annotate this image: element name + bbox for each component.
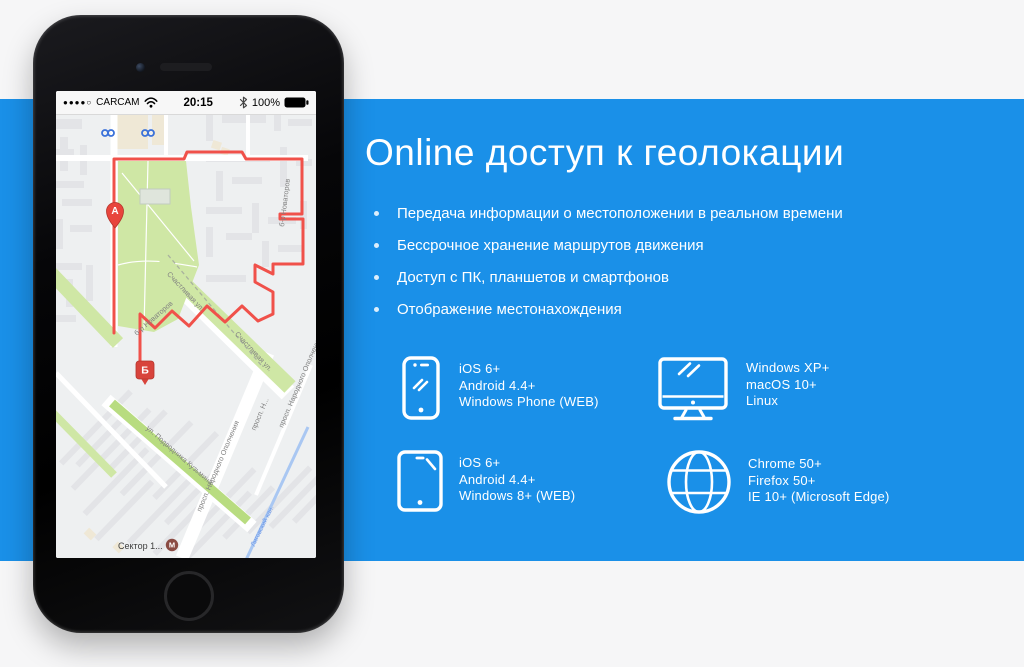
status-bar: ●●●●○ CARCAM 20:15 100% (56, 91, 316, 115)
svg-text:А: А (111, 206, 118, 217)
platform-line: Windows XP+ (746, 360, 829, 377)
platform-line: iOS 6+ (459, 455, 575, 472)
bullet-dot-icon (374, 307, 379, 312)
camera-icon (136, 63, 145, 72)
platform-line: Windows 8+ (WEB) (459, 488, 575, 505)
bullet-dot-icon (374, 275, 379, 280)
feature-bullets: Передача информации о местоположении в р… (374, 197, 843, 325)
platform-block-desktop: Windows XP+ macOS 10+ Linux (658, 357, 829, 421)
globe-icon (666, 449, 732, 515)
bullet-dot-icon (374, 211, 379, 216)
bullet-item: Доступ с ПК, планшетов и смартфонов (374, 261, 843, 293)
home-button (164, 571, 214, 621)
svg-text:М: М (169, 541, 175, 550)
page-title: Online доступ к геолокации (365, 132, 844, 174)
bullet-dot-icon (374, 243, 379, 248)
map-view: б-р Новаторов б-р Новаторов Счастливая у… (56, 115, 316, 558)
phone-mockup: ●●●●○ CARCAM 20:15 100% (33, 15, 344, 633)
status-right: 100% (239, 96, 309, 109)
bullet-item: Передача информации о местоположении в р… (374, 197, 843, 229)
platform-line: Linux (746, 393, 829, 410)
tablet-icon (397, 450, 443, 512)
bluetooth-icon (239, 96, 248, 109)
platform-line: Firefox 50+ (748, 473, 890, 490)
platform-line: Chrome 50+ (748, 456, 890, 473)
svg-text:Б: Б (141, 365, 149, 377)
platform-line: iOS 6+ (459, 361, 599, 378)
bullet-text: Передача информации о местоположении в р… (397, 205, 843, 222)
bullet-text: Бессрочное хранение маршрутов движения (397, 237, 704, 254)
platform-line: IE 10+ (Microsoft Edge) (748, 489, 890, 506)
platform-block-browser: Chrome 50+ Firefox 50+ IE 10+ (Microsoft… (666, 449, 890, 515)
sector-label: Сектор 1... (118, 541, 163, 551)
platform-line: Android 4.4+ (459, 472, 575, 489)
signal-strength-icon: ●●●●○ (63, 98, 92, 107)
metro-icon: М (166, 539, 178, 551)
bullet-text: Отображение местонахождения (397, 301, 622, 318)
battery-percent: 100% (252, 97, 280, 109)
bullet-item: Отображение местонахождения (374, 293, 843, 325)
bullet-text: Доступ с ПК, планшетов и смартфонов (397, 269, 669, 286)
wifi-icon (144, 97, 158, 108)
status-left: ●●●●○ CARCAM (63, 97, 158, 108)
phone-screen: ●●●●○ CARCAM 20:15 100% (56, 91, 316, 558)
platform-line: Android 4.4+ (459, 378, 599, 395)
platform-line: Windows Phone (WEB) (459, 394, 599, 411)
carrier-label: CARCAM (96, 97, 139, 108)
speaker-slot (160, 63, 212, 71)
platform-block-tablet: iOS 6+ Android 4.4+ Windows 8+ (WEB) (397, 450, 575, 512)
bullet-item: Бессрочное хранение маршрутов движения (374, 229, 843, 261)
clock-label: 20:15 (183, 97, 212, 109)
smartphone-icon (402, 356, 440, 420)
desktop-monitor-icon (658, 357, 728, 421)
battery-icon (284, 97, 309, 108)
platform-block-mobile: iOS 6+ Android 4.4+ Windows Phone (WEB) (402, 356, 599, 420)
platform-line: macOS 10+ (746, 377, 829, 394)
